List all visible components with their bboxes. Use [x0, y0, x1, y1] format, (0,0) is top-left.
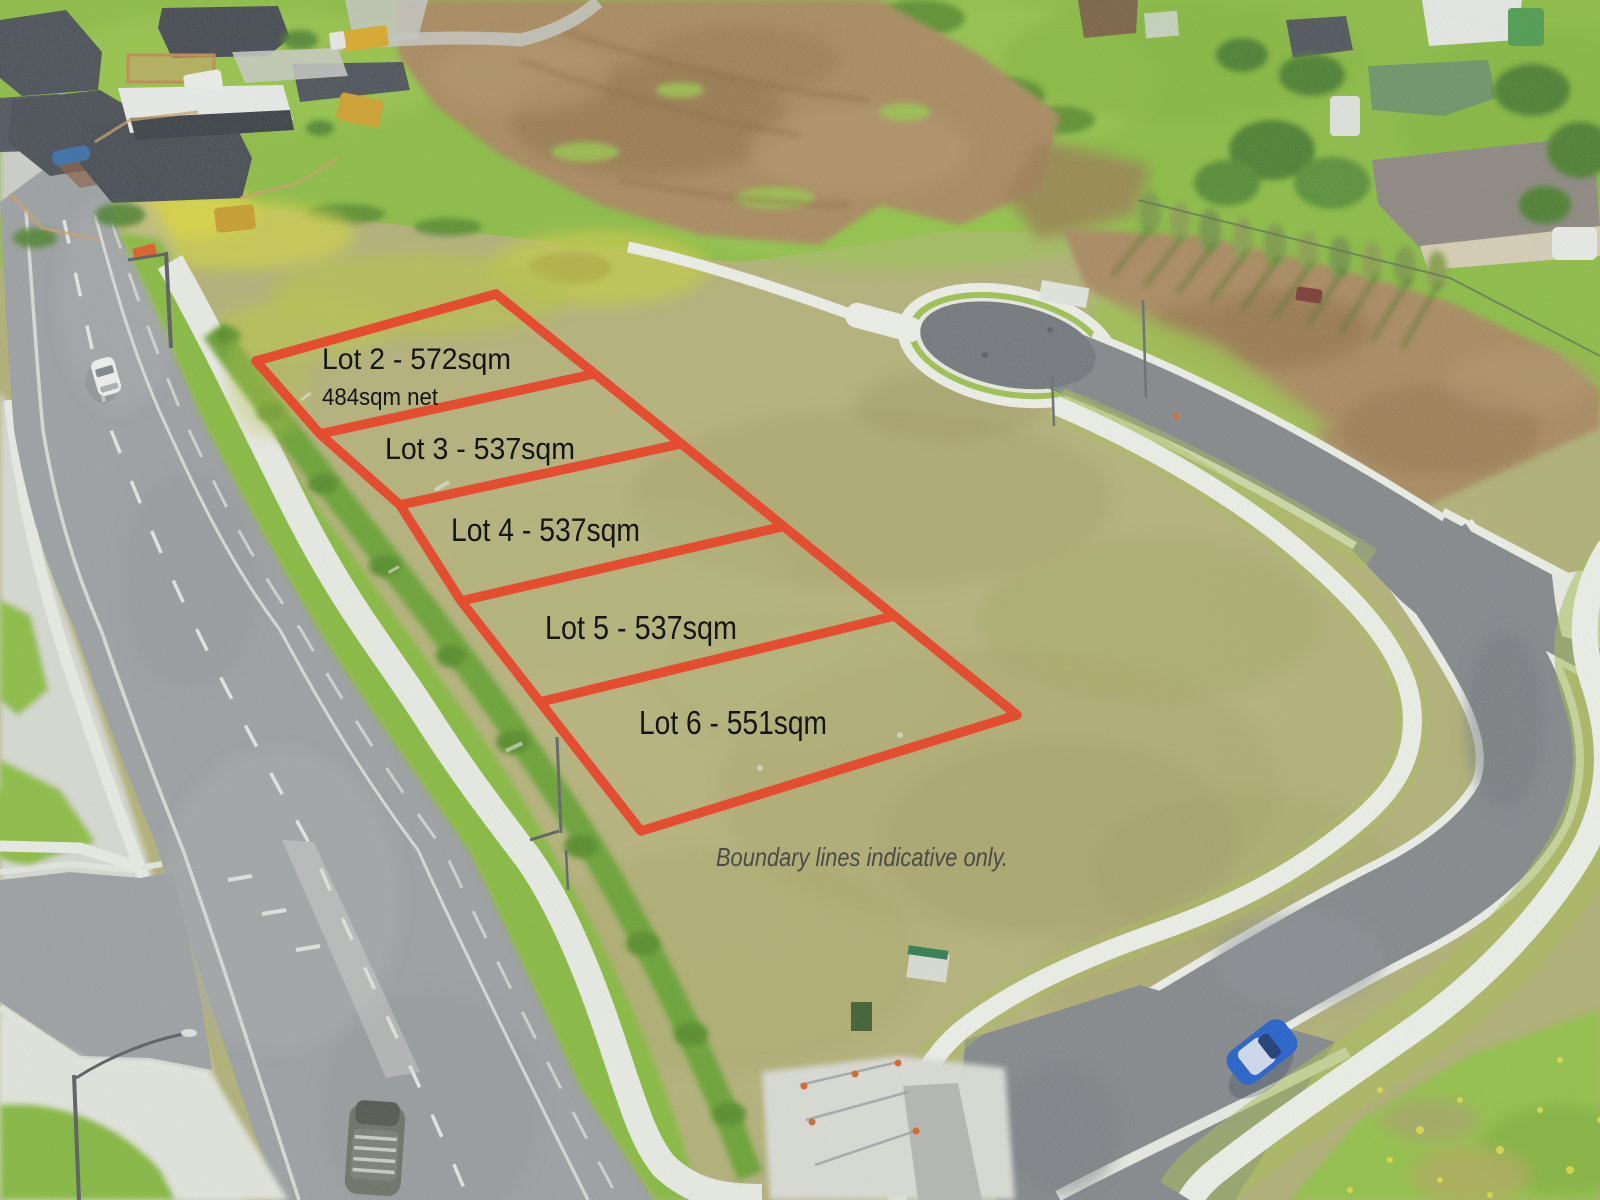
svg-text:484sqm net: 484sqm net [322, 384, 438, 411]
svg-text:Lot 3 - 537sqm: Lot 3 - 537sqm [385, 431, 575, 466]
svg-text:Lot 4 - 537sqm: Lot 4 - 537sqm [451, 512, 640, 548]
svg-text:Lot 2 - 572sqm: Lot 2 - 572sqm [322, 343, 511, 376]
svg-text:Boundary lines indicative only: Boundary lines indicative only. [716, 842, 1008, 872]
svg-text:Lot 5 - 537sqm: Lot 5 - 537sqm [545, 609, 737, 646]
svg-text:Lot 6 - 551sqm: Lot 6 - 551sqm [639, 704, 827, 741]
